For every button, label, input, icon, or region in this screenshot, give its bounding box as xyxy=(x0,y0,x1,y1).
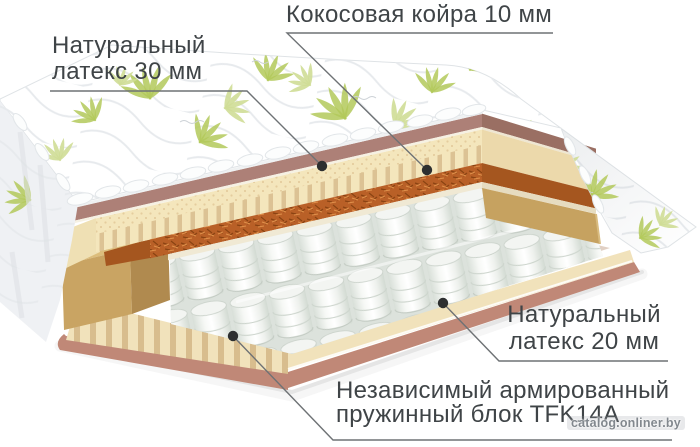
label-latex-bottom: Натуральный латекс 20 мм xyxy=(498,301,670,355)
label-coir: Кокосовая койра 10 мм xyxy=(286,2,552,28)
watermark: catalog.onliner.by xyxy=(567,416,685,430)
label-latex-top: Натуральный латекс 30 мм xyxy=(52,33,206,85)
label-coir-text: Кокосовая койра 10 мм xyxy=(286,2,552,28)
label-spring-block-line1: Независимый армированный xyxy=(336,379,669,403)
callout-dot-coir xyxy=(422,165,432,175)
callout-dot-springs xyxy=(228,331,238,341)
label-latex-top-line2: латекс 30 мм xyxy=(52,59,206,85)
callout-dot-latex-bottom xyxy=(438,298,448,308)
label-latex-bottom-line1: Натуральный xyxy=(498,301,670,328)
label-latex-top-line1: Натуральный xyxy=(52,33,206,59)
label-latex-bottom-line2: латекс 20 мм xyxy=(498,328,670,355)
callout-dot-latex-top xyxy=(317,161,327,171)
mattress-cutaway-image: Натуральный латекс 30 мм Кокосовая койра… xyxy=(0,0,700,447)
